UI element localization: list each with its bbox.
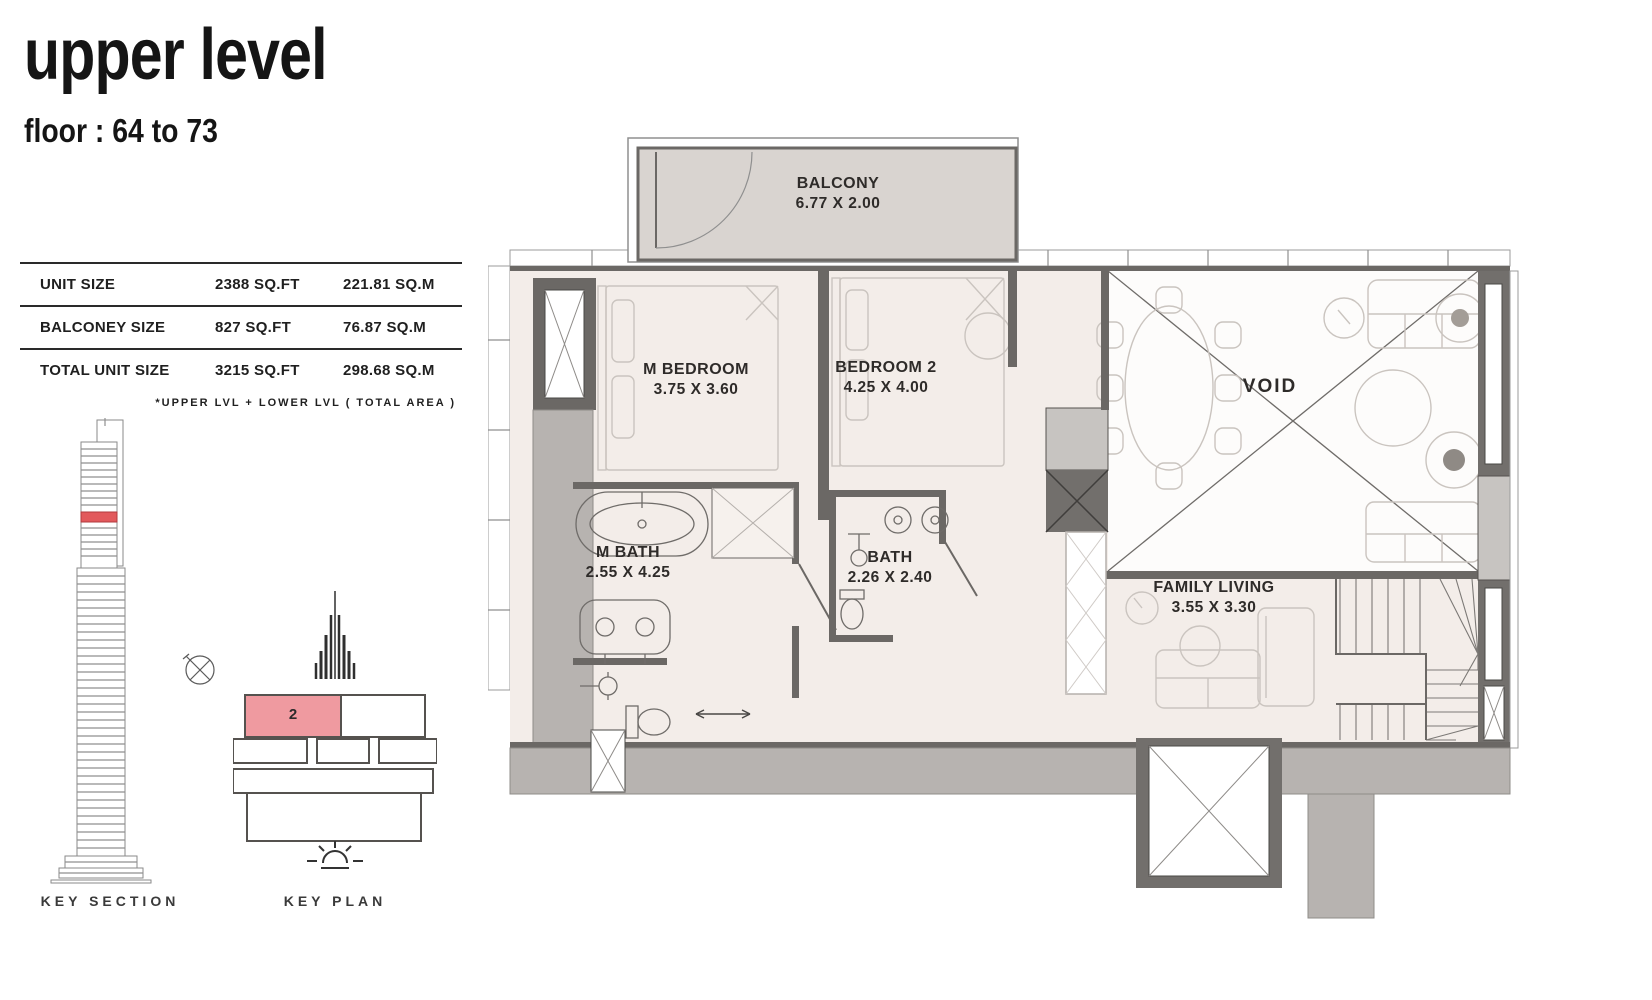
room-label-bath: BATH 2.26 X 2.40 (848, 550, 933, 586)
duct-block (1046, 408, 1108, 470)
tower-shaft (77, 568, 125, 856)
row-label: BALCONEY SIZE (20, 319, 215, 336)
wall-leg (1308, 794, 1374, 918)
room-label-m-bath: M BATH 2.55 X 4.25 (586, 545, 671, 581)
row-sqm: 76.87 SQ.M (343, 319, 462, 336)
unit-number: 2 (281, 706, 305, 723)
sun-icon (307, 841, 363, 868)
wardrobe (1066, 532, 1106, 694)
table-row: TOTAL UNIT SIZE 3215 SQ.FT 298.68 SQ.M (20, 348, 462, 391)
bottom-wall (510, 730, 1510, 918)
burj-icon (316, 591, 354, 679)
table-row: BALCONEY SIZE 827 SQ.FT 76.87 SQ.M (20, 305, 462, 348)
area-footnote: *UPPER LVL + LOWER LVL ( TOTAL AREA ) (20, 397, 462, 409)
room-label-m-bedroom: M BEDROOM 3.75 X 3.60 (643, 362, 749, 398)
building-footprint (233, 695, 437, 841)
row-sqft: 827 SQ.FT (215, 319, 343, 336)
compass-icon (176, 646, 220, 690)
void-area (1108, 271, 1478, 571)
key-plan-diagram (233, 583, 437, 883)
floor-plan: BALCONY 6.77 X 2.00 M BEDROOM 3.75 X 3.6… (488, 130, 1652, 945)
room-label-balcony: BALCONY 6.77 X 2.00 (796, 176, 881, 212)
floor-range-subtitle: floor : 64 to 73 (24, 112, 218, 150)
room-label-bedroom-2: BEDROOM 2 4.25 X 4.00 (835, 360, 936, 396)
key-section-tower (45, 418, 165, 888)
key-plan-label: KEY PLAN (240, 893, 430, 909)
tower-top-block (81, 442, 117, 568)
key-section-label: KEY SECTION (20, 893, 200, 909)
row-sqm: 298.68 SQ.M (343, 362, 462, 379)
page-title: upper level (24, 14, 327, 96)
row-sqm: 221.81 SQ.M (343, 276, 462, 293)
unit-size-table: UNIT SIZE 2388 SQ.FT 221.81 SQ.M BALCONE… (20, 262, 462, 409)
service-shaft (533, 410, 593, 748)
row-label: TOTAL UNIT SIZE (20, 362, 215, 379)
closet (712, 488, 794, 558)
floor-plan-drawing (488, 130, 1652, 945)
right-wall (1478, 271, 1518, 748)
tower-base (51, 856, 151, 883)
highlighted-floors-band (81, 512, 117, 522)
room-label-void: VOID (1243, 377, 1297, 396)
table-row: UNIT SIZE 2388 SQ.FT 221.81 SQ.M (20, 262, 462, 305)
window-band-left (488, 266, 510, 690)
row-label: UNIT SIZE (20, 276, 215, 293)
row-sqft: 3215 SQ.FT (215, 362, 343, 379)
room-label-family-living: FAMILY LIVING 3.55 X 3.30 (1153, 580, 1274, 616)
row-sqft: 2388 SQ.FT (215, 276, 343, 293)
